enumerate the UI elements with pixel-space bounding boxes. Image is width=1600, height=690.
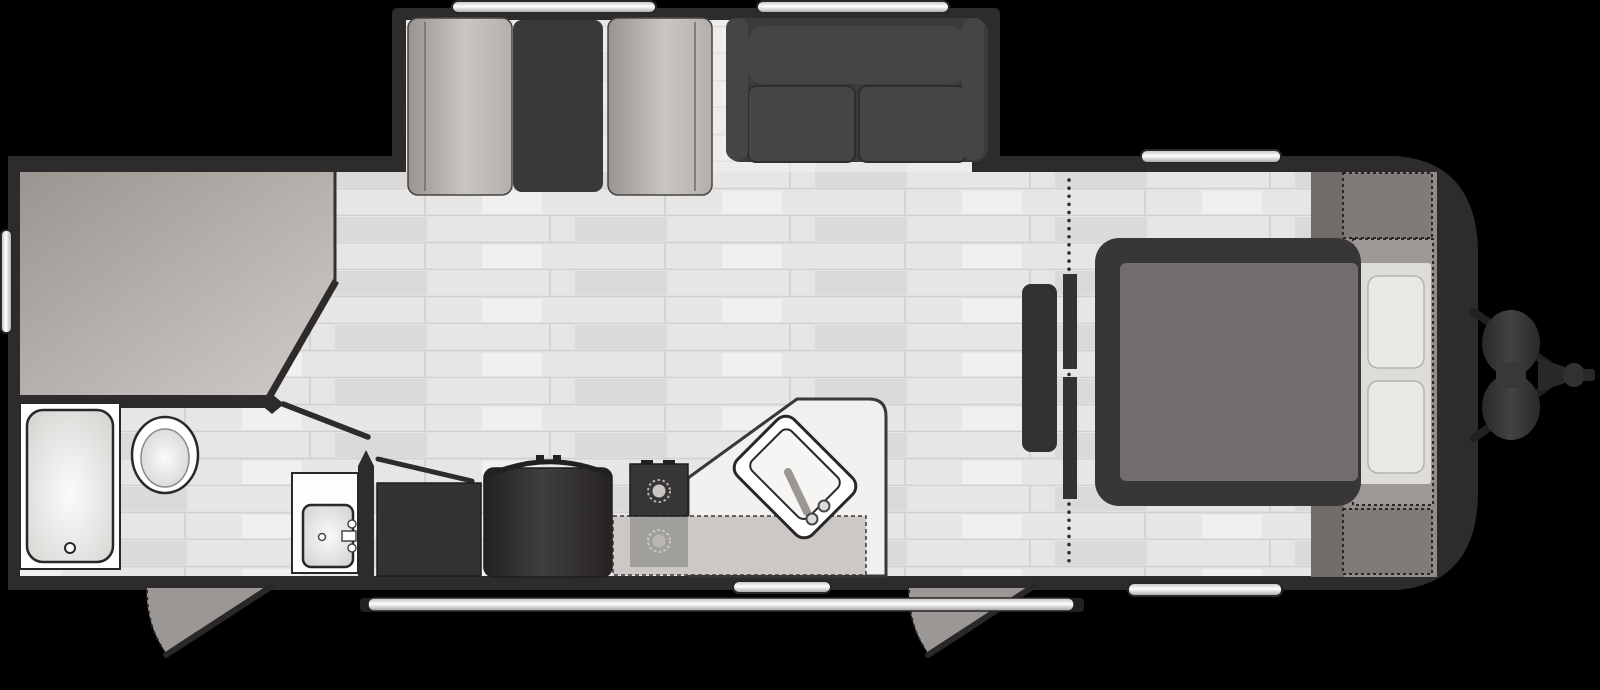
faucet-knob-icon (348, 544, 356, 552)
dinette (408, 18, 712, 195)
kitchen-wall-stub (358, 450, 374, 578)
mattress (1120, 263, 1358, 481)
burner-rear-center (653, 485, 666, 498)
dinette-bench-left (408, 18, 512, 195)
burner-front-center (653, 535, 666, 548)
door-hinge-mark (553, 455, 561, 462)
coupler-tip (1583, 369, 1595, 381)
awning-rail-bar (368, 598, 1074, 611)
window-bedroom (1128, 583, 1282, 596)
refrigerator-body (484, 468, 612, 577)
front-wardrobe-top (1343, 173, 1432, 238)
entry-grab-handle (733, 581, 831, 593)
dinette-bench-right (608, 18, 712, 195)
sofa-seat-cushion (859, 86, 966, 162)
pillow (1368, 276, 1424, 368)
shower-drain-icon (65, 543, 75, 553)
awning-rail (360, 598, 1084, 612)
floorplan-image (0, 0, 1600, 690)
coupler-ball (1563, 363, 1585, 387)
bathroom-faucet (342, 531, 356, 541)
tv (1063, 274, 1077, 369)
bedroom-dresser (1022, 284, 1057, 452)
front-wardrobe-bottom (1343, 509, 1432, 574)
tv-stand (1063, 377, 1077, 499)
door-hinge-mark (536, 455, 544, 462)
sofa-back-cushion (748, 26, 966, 84)
window-slideout-right (757, 1, 949, 13)
toilet (132, 417, 198, 493)
bed (1095, 238, 1433, 506)
dinette-table (513, 20, 603, 192)
faucet-knob-icon (348, 520, 356, 528)
bathroom-vanity (292, 473, 358, 573)
floorplan-canvas (0, 0, 1600, 690)
pillow (1368, 381, 1424, 473)
window-rear (1, 230, 12, 333)
tank-tray (1496, 362, 1526, 388)
faucet-knob-icon (807, 514, 818, 525)
sofa (726, 18, 988, 162)
shower-pan (27, 410, 113, 562)
faucet-knob-icon (819, 501, 830, 512)
sink-drain-icon (319, 534, 326, 541)
sofa-armrest (962, 18, 984, 160)
toilet-bowl (141, 429, 189, 487)
range-cooktop (630, 460, 688, 567)
wardrobe-cabinet (377, 483, 481, 576)
window-roadside (1141, 150, 1281, 163)
sofa-seat-cushion (748, 86, 855, 162)
shower (20, 403, 120, 569)
sofa-armrest (726, 18, 748, 160)
window-slideout-left (452, 1, 656, 13)
refrigerator (484, 455, 612, 577)
